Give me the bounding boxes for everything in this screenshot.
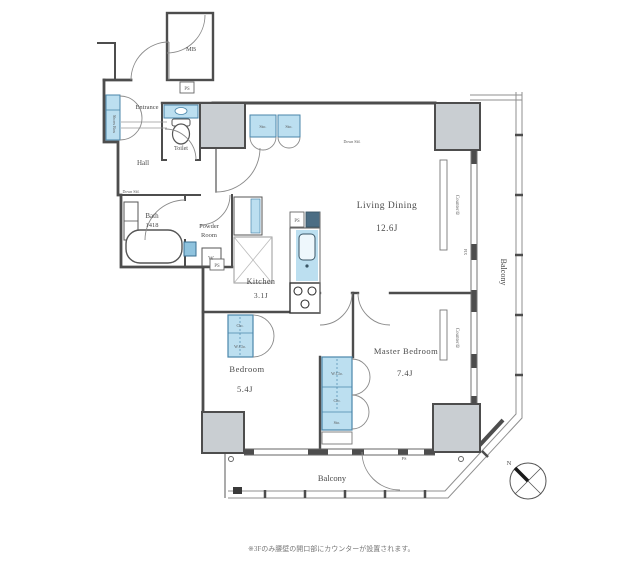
closet-door-arc	[352, 359, 370, 377]
balcony-bottom-label: Balcony	[318, 473, 347, 483]
toilet-bowl	[173, 124, 190, 144]
powder-room-label-2: Room	[201, 232, 217, 239]
entry-door-arc	[131, 42, 169, 80]
toilet-label: Toilet	[174, 146, 188, 152]
closet-door-arc	[352, 377, 370, 395]
living-dining-size: 12.6J	[376, 223, 398, 233]
storage-door-arc	[278, 137, 289, 148]
balcony-drain	[233, 487, 242, 494]
bedroom-closet-label-bottom: W.Clo.	[234, 344, 246, 349]
fixtures	[106, 82, 447, 444]
closet-lower-box	[322, 432, 352, 444]
kitchen-faucet	[305, 264, 308, 267]
bedroom-door-arc	[320, 293, 352, 325]
storage-label-1: Sto.	[259, 124, 266, 129]
bedroom-size: 5.4J	[237, 384, 253, 394]
powder-room-label-1: Powder	[199, 223, 220, 230]
storage-door-arc	[289, 137, 300, 148]
master-closet-label-mid: Clo.	[333, 398, 340, 403]
duct-box	[306, 212, 320, 227]
toilet-tank-basin	[175, 108, 187, 115]
counter-master-label: Counter①	[454, 328, 460, 349]
master-door-arc	[358, 293, 390, 325]
storage-door-arc	[250, 137, 263, 150]
storage-label-2: Sto.	[285, 124, 292, 129]
storage-door-arc	[263, 137, 276, 150]
ps-label-mb: PS	[184, 87, 190, 92]
living-dining-label: Living Dining	[357, 201, 418, 211]
hall-label: Hall	[137, 159, 149, 167]
floor-plan-page: N Living Dining 12.6J Master Bedroom 7.4…	[0, 0, 640, 569]
washer-label: W	[208, 256, 214, 262]
closet-door-arc	[352, 412, 369, 429]
balcony-right-label: Balcony	[499, 259, 508, 286]
shoes-box-label: Shoes Box	[112, 115, 117, 134]
closet-door-arc	[352, 395, 369, 412]
column-se	[433, 404, 480, 452]
powder-door-arc	[200, 195, 230, 225]
column-shaft	[200, 103, 245, 148]
down-ceiling-label-1: Down Sld.	[343, 139, 360, 144]
master-bedroom-size: 7.4J	[397, 368, 413, 378]
bath-label: Bath	[145, 212, 159, 220]
kitchen-sink	[299, 234, 315, 260]
compass: N	[507, 460, 546, 499]
master-closet-label-bottom: Sto.	[334, 420, 341, 425]
kitchen-size: 3.1J	[254, 291, 268, 300]
bedroom-closet-label-top: Clo.	[236, 323, 243, 328]
counter-living-label: Counter①	[454, 195, 460, 216]
counter-master-shape	[440, 310, 447, 360]
master-closet-label-top: W.Clo.	[331, 371, 343, 376]
hall-door-arc	[216, 148, 260, 192]
balcony-door-arc	[362, 452, 400, 490]
floor-plan-drawing: N Living Dining 12.6J Master Bedroom 7.4…	[0, 0, 640, 569]
porch-wall	[98, 43, 115, 80]
master-bedroom-label: Master Bedroom	[374, 346, 438, 356]
counter-living-shape	[440, 160, 447, 250]
ps-label-kitchen: PS	[294, 219, 300, 224]
ps-label-wall: PS	[401, 456, 407, 461]
down-ceiling-label-2: Down Sld.	[122, 189, 139, 194]
ps-label-bath: PS	[214, 264, 220, 269]
footnote: ※3Fのみ腰壁の開口部にカウンターが設置されます。	[248, 544, 415, 553]
railing-ticks	[265, 135, 523, 498]
closet-door-arc	[253, 315, 274, 336]
fix-window-label: FIX	[463, 249, 467, 255]
closet-door-arc	[253, 336, 274, 357]
bedroom-closet	[228, 315, 253, 357]
entrance-label: Entrance	[135, 104, 158, 111]
drain-symbol	[459, 457, 464, 462]
kitchen-label: Kitchen	[247, 277, 276, 286]
mb-label: MB	[186, 46, 197, 53]
column-sw	[202, 412, 244, 453]
kitchen-cabinet-blue	[251, 199, 260, 233]
compass-north-label: N	[507, 460, 512, 467]
column-ne	[435, 103, 480, 150]
bedroom-label: Bedroom	[229, 364, 264, 374]
bathtub	[126, 230, 182, 263]
shoes-box-door-arc	[120, 118, 142, 140]
ps-blue-box	[184, 242, 196, 256]
compass-needle	[515, 468, 528, 481]
bath-size: 1418	[146, 222, 159, 229]
drain-symbol	[229, 457, 234, 462]
